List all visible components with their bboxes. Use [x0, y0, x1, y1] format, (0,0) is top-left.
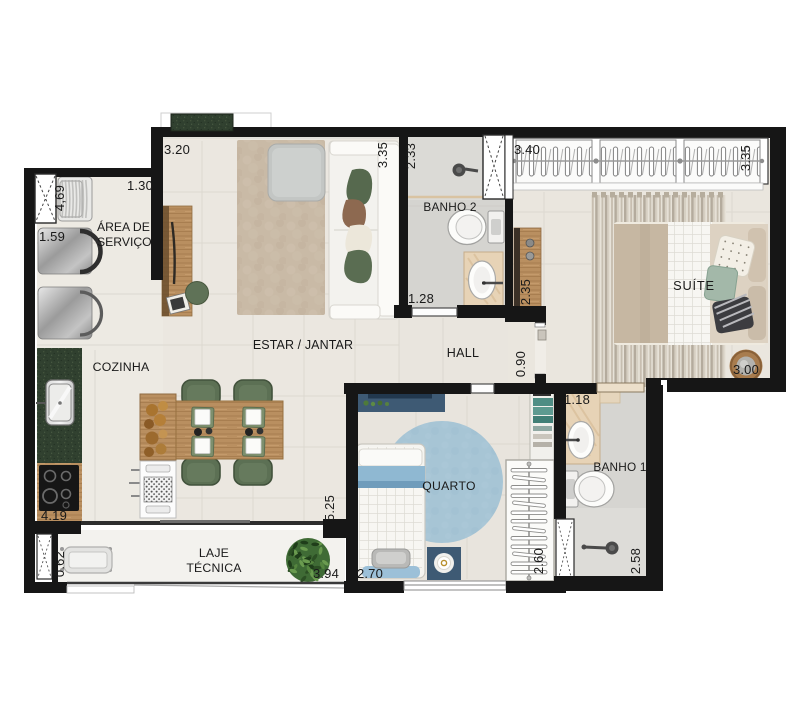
svg-text:2.33: 2.33: [403, 143, 418, 169]
svg-text:2.60: 2.60: [531, 548, 546, 574]
svg-text:2.35: 2.35: [518, 279, 533, 305]
svg-text:SERVIÇO: SERVIÇO: [97, 235, 152, 249]
svg-text:COZINHA: COZINHA: [93, 360, 150, 374]
svg-text:3.00: 3.00: [733, 362, 759, 377]
svg-text:0.62: 0.62: [52, 551, 67, 577]
svg-text:LAJE: LAJE: [199, 546, 229, 560]
svg-text:4,69: 4,69: [52, 185, 67, 211]
svg-text:3.20: 3.20: [164, 142, 190, 157]
svg-text:0.90: 0.90: [513, 351, 528, 377]
svg-text:2.70: 2.70: [357, 566, 383, 581]
svg-text:1.59: 1.59: [39, 229, 65, 244]
svg-text:TÉCNICA: TÉCNICA: [186, 560, 242, 575]
svg-text:3.35: 3.35: [738, 145, 753, 171]
svg-text:ÁREA DE: ÁREA DE: [97, 219, 150, 234]
svg-text:5.25: 5.25: [322, 495, 337, 521]
svg-text:BANHO 1: BANHO 1: [593, 460, 646, 474]
svg-text:1.28: 1.28: [408, 291, 434, 306]
svg-text:1.30: 1.30: [127, 178, 153, 193]
svg-text:BANHO 2: BANHO 2: [423, 200, 476, 214]
svg-text:QUARTO: QUARTO: [422, 479, 476, 493]
svg-text:3.40: 3.40: [514, 142, 540, 157]
svg-text:SUÍTE: SUÍTE: [673, 278, 715, 293]
svg-text:3.94: 3.94: [313, 566, 339, 581]
svg-text:2.58: 2.58: [628, 548, 643, 574]
svg-text:1.18: 1.18: [564, 392, 590, 407]
svg-text:3.35: 3.35: [375, 142, 390, 168]
svg-text:ESTAR / JANTAR: ESTAR / JANTAR: [253, 338, 353, 352]
svg-text:4.19: 4.19: [41, 508, 67, 523]
svg-text:HALL: HALL: [447, 346, 479, 360]
